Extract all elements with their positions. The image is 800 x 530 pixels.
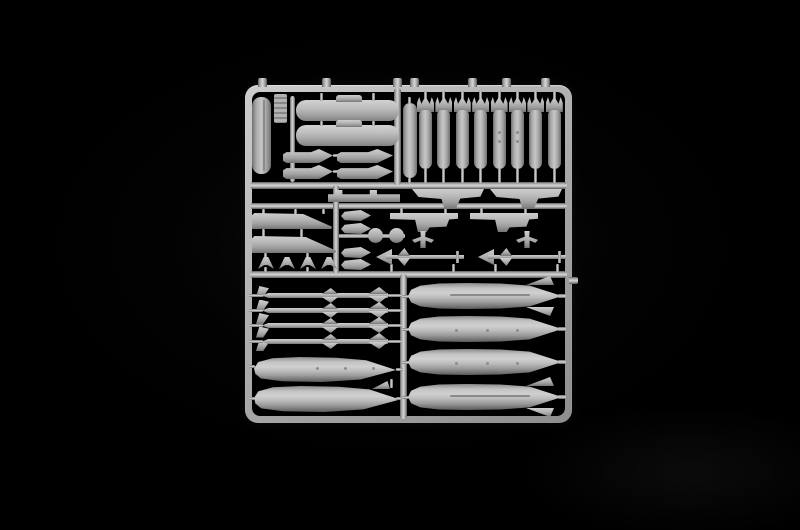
large-tank-3-pin-mark-2 (486, 362, 489, 365)
large-tank-3-pin-mark-1 (455, 362, 458, 365)
large-tank-2-tail-gate (558, 327, 566, 331)
large-tank-1-nose-gate (402, 295, 409, 298)
large-tank-4-body (408, 384, 562, 410)
large-tank-1-tailfin-top (526, 276, 554, 285)
large-tanks-group (0, 0, 800, 530)
sprue-frame (0, 0, 800, 530)
large-tank-2-body (408, 316, 562, 342)
large-tank-1-tailfin-bottom (526, 307, 554, 316)
large-tank-4-tailfin-bottom (526, 408, 554, 417)
large-tank-4-nose-gate (402, 396, 409, 399)
large-tank-3-tail-gate (558, 360, 566, 364)
large-tank-3-body (408, 349, 562, 375)
large-tank-4-seam (450, 395, 530, 397)
large-tank-2-pin-mark-1 (455, 329, 458, 332)
large-tank-2-nose-gate (402, 328, 409, 331)
large-tank-1-seam (450, 294, 530, 296)
large-tank-3-nose-gate (402, 361, 409, 364)
large-tank-4-tailfin-top (526, 377, 554, 386)
large-tank-1-tail-gate (558, 294, 566, 298)
large-tank-4-tail-gate (558, 395, 566, 399)
photo-stage (0, 0, 800, 530)
large-tank-2-pin-mark-3 (516, 329, 519, 332)
large-tank-1-body (408, 283, 562, 309)
large-tank-2-pin-mark-2 (486, 329, 489, 332)
large-tank-3-pin-mark-3 (516, 362, 519, 365)
